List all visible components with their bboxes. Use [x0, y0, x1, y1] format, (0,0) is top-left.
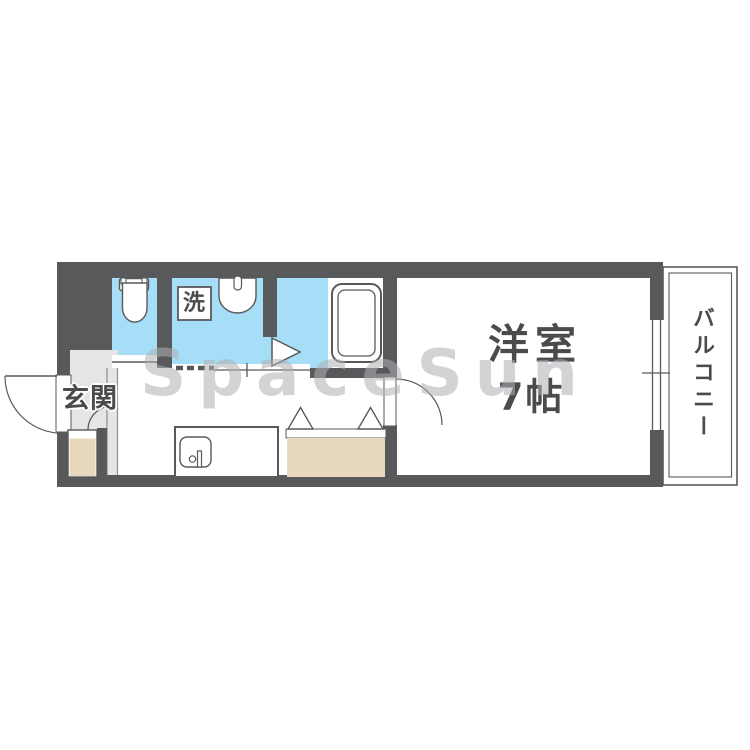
shoe-cabinet-fill [70, 439, 96, 477]
washroom-sliding-door [172, 363, 310, 377]
closet [286, 408, 386, 478]
closet-folding-door-icon-right [358, 408, 383, 430]
kitchen-sink-icon [180, 437, 211, 467]
entrance-door-swing-arc [5, 376, 57, 433]
floor-plan-drawing [0, 0, 750, 750]
bathtub-outer [332, 284, 381, 362]
wall-right-upper [650, 262, 663, 320]
washbasin-icon [219, 276, 256, 313]
wall-right-of-bath [383, 262, 397, 378]
balcony-label: バルコニー [690, 307, 712, 442]
wall-right-lower [650, 430, 663, 487]
wall-washroom-bath [263, 278, 277, 337]
room-door-gap [384, 377, 396, 426]
toilet-door [112, 355, 157, 368]
entrance-label: 玄関 [62, 386, 118, 413]
room-door [384, 377, 442, 426]
washing-machine-label: 洗 [183, 293, 205, 315]
wall-right-of-shoebox [97, 428, 107, 477]
kitchen-counter [175, 427, 278, 477]
toilet-icon [120, 278, 149, 322]
closet-folding-door-icon-left [288, 408, 313, 430]
wall-top [57, 262, 663, 278]
wall-block-left-of-toilet [70, 278, 112, 350]
wall-left-upper [57, 262, 70, 375]
bathtub-icon [332, 284, 381, 362]
shoe-cabinet [68, 430, 97, 477]
closet-fill [287, 438, 385, 477]
toilet-bowl [123, 283, 148, 322]
floor-plan: 玄関 洗 洋室 7帖 バルコニー SpaceSun [0, 0, 750, 750]
western-room-size-label: 7帖 [498, 379, 565, 416]
kitchen-faucet-bar [198, 451, 202, 467]
room-door-swing-arc [396, 379, 442, 425]
window-gap [649, 320, 664, 430]
closet-front-band [286, 429, 386, 438]
wall-toilet-washroom [157, 278, 172, 368]
western-room-label: 洋室 [488, 325, 582, 366]
kitchen-faucet-knob [189, 456, 195, 462]
washbasin-faucet [234, 276, 242, 290]
